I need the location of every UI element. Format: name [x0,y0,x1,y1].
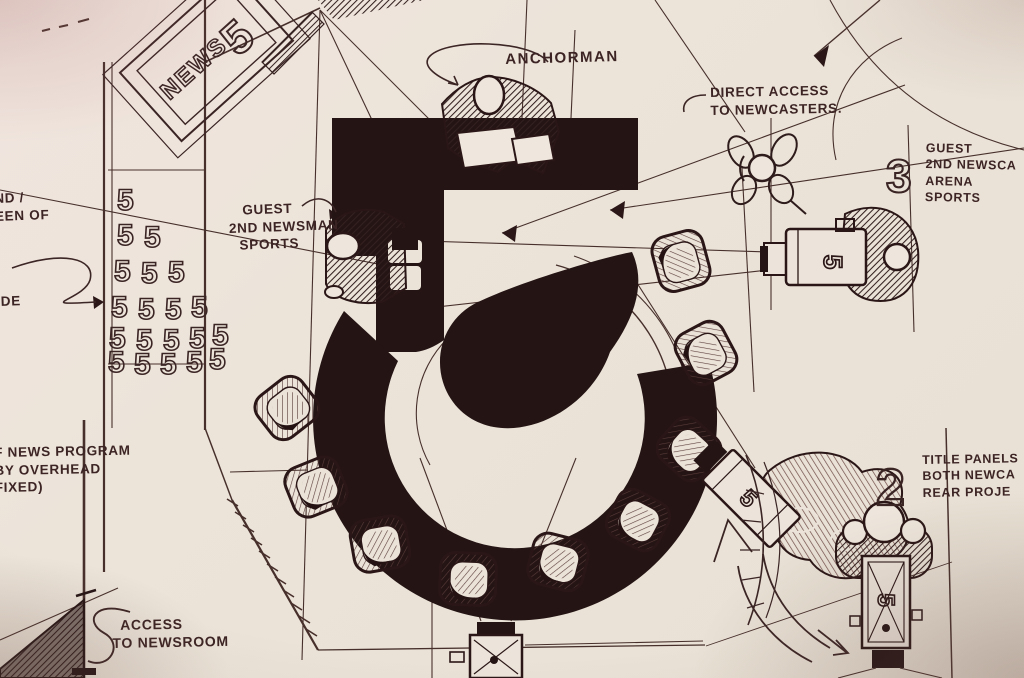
svg-text:5: 5 [111,291,128,324]
camera-badge: 5 [818,255,848,269]
svg-text:5: 5 [165,293,182,326]
chair [649,227,714,295]
camera-lens-hood [477,622,515,635]
studio-sketch: 5 55 555 5555 55555 55555 NEWS 5 [0,0,1024,678]
camera-bottom [450,622,522,678]
sketch-canvas: 5 55 555 5555 55555 55555 NEWS 5 [0,0,1024,678]
newscaster-right-figure [723,130,806,214]
svg-text:5: 5 [209,343,226,376]
left-edge-middle-label: IDE [0,292,21,310]
panel-news-text: NEWS [155,32,233,106]
left-edge-upper-label: ND / EEN OF [0,188,50,225]
svg-text:5: 5 [191,291,208,324]
svg-text:5: 5 [160,348,177,381]
camera-right: 5 [760,208,918,301]
guest-newsman-figure [325,210,418,303]
svg-text:5: 5 [144,221,161,254]
anchorman-head [474,76,504,114]
camera-vertical-right: 5 [836,502,942,678]
direct-access-label: DIRECT ACCESS TO NEWCASTERS. [710,82,842,119]
svg-text:5: 5 [168,256,185,289]
svg-text:5: 5 [141,257,158,290]
note-number-3: 3 [886,150,912,202]
newscaster-head [749,155,775,181]
operator-head [884,244,910,270]
svg-text:5: 5 [138,293,155,326]
news5-panel: NEWS 5 [103,0,310,158]
anchorman-papers [512,134,554,165]
chair [249,370,325,445]
svg-text:5: 5 [108,346,125,379]
news-program-label: F NEWS PROGRAM BY OVERHEAD FIXED) [0,442,131,497]
svg-text:5: 5 [114,255,131,288]
access-newsroom-label: ACCESS TO NEWSROOM [112,614,229,652]
chair [348,514,412,575]
logo-wall: 5 55 555 5555 55555 55555 [108,184,229,381]
note-number-2: 2 [876,459,905,517]
anchorman-label: ANCHORMAN [505,47,619,69]
svg-text:5: 5 [186,346,203,379]
guest-newscaster-right-label: GUEST 2ND NEWSCA ARENA SPORTS [925,140,1017,207]
title-panels-label: TITLE PANELS BOTH NEWCA REAR PROJE [922,450,1019,500]
anchorman-papers [457,127,522,168]
camera-lens-hood [872,650,904,668]
svg-text:5: 5 [117,219,134,252]
camera-badge: 5 [872,593,899,606]
svg-text:5: 5 [117,184,134,217]
chair [439,552,497,606]
top-edge-wedge [318,0,424,20]
guest-newsman-left-label: GUEST 2ND NEWSMAN SPORTS [228,198,339,254]
svg-text:5: 5 [134,348,151,381]
